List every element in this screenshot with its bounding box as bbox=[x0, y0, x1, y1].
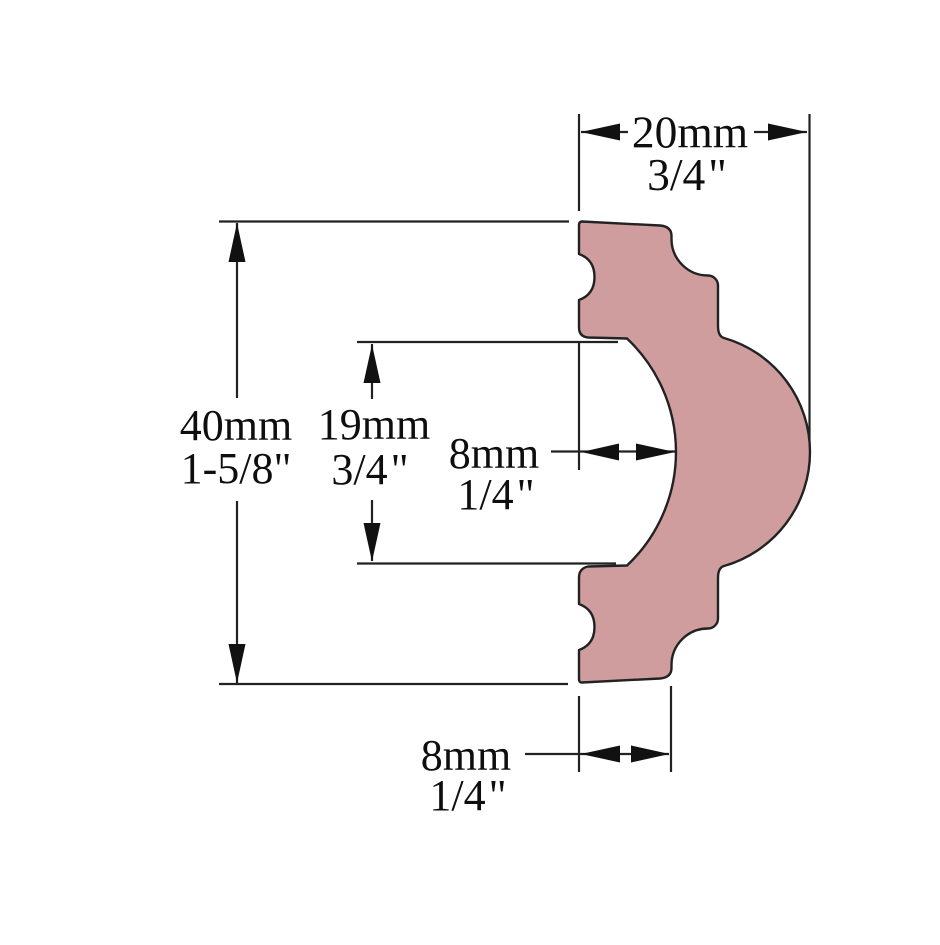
svg-text:40mm: 40mm bbox=[180, 401, 292, 450]
svg-text:3/4": 3/4" bbox=[331, 445, 408, 494]
svg-text:1/4": 1/4" bbox=[429, 771, 506, 820]
svg-text:3/4": 3/4" bbox=[647, 149, 727, 200]
svg-text:19mm: 19mm bbox=[318, 400, 430, 449]
svg-text:1/4": 1/4" bbox=[457, 470, 534, 519]
svg-text:1-5/8": 1-5/8" bbox=[181, 444, 292, 493]
